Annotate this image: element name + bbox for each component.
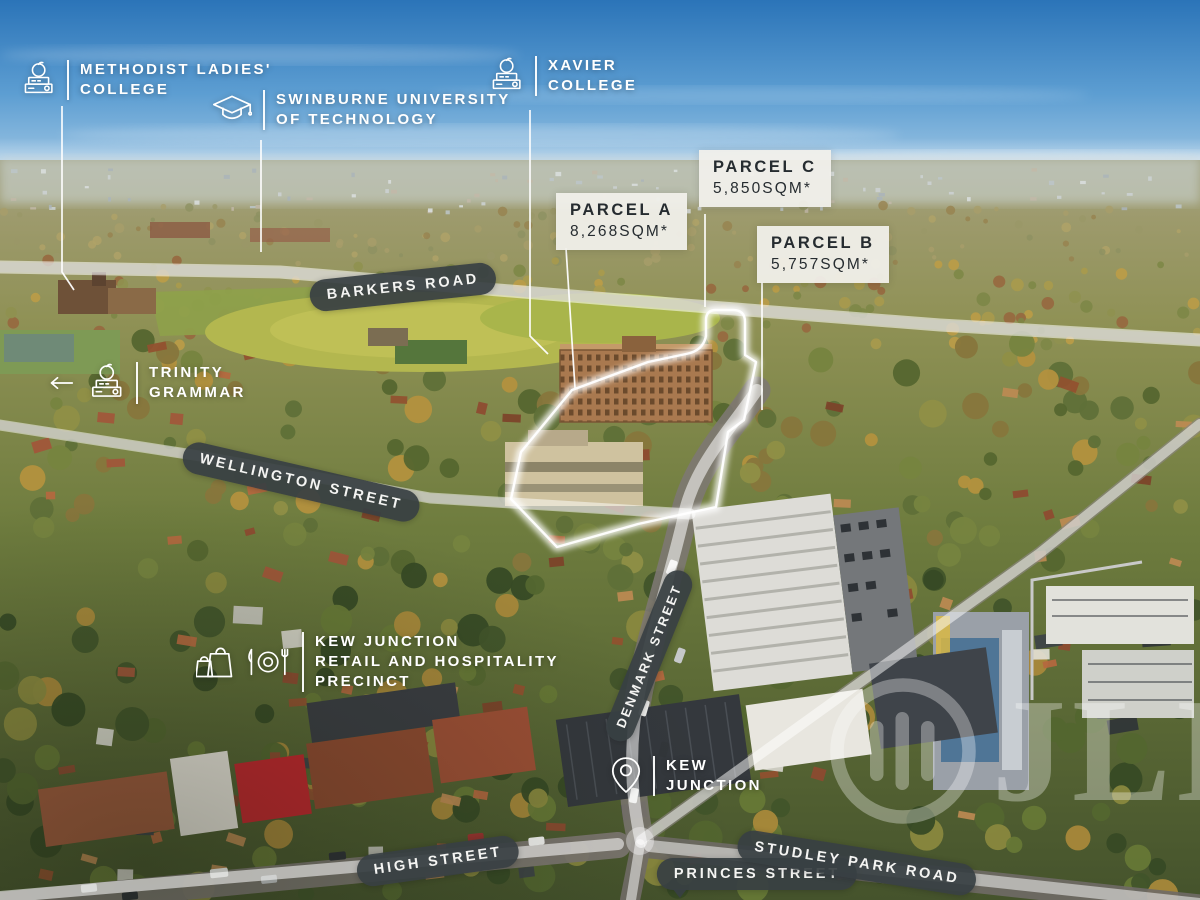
label-divider (653, 756, 655, 796)
label-line: JUNCTION (666, 776, 762, 796)
school-icon (85, 362, 125, 404)
aerial-photo-background (0, 0, 1200, 900)
label-divider (67, 60, 69, 100)
label-trinity-grammar: TRINITY GRAMMAR (48, 362, 246, 404)
label-line: PRECINCT (315, 672, 559, 692)
label-line: COLLEGE (548, 76, 637, 96)
label-kew-junction: KEW JUNCTION (610, 756, 762, 796)
school-icon (486, 56, 524, 96)
parcel-area: 5,757SQM* (771, 256, 875, 274)
parcel-c-callout: PARCEL C 5,850SQM* (699, 150, 831, 207)
label-divider (263, 90, 265, 130)
graduation-cap-icon (212, 94, 252, 126)
label-swinburne-university: SWINBURNE UNIVERSITY OF TECHNOLOGY (212, 90, 511, 130)
label-line: GRAMMAR (149, 383, 246, 403)
label-line: RETAIL AND HOSPITALITY (315, 652, 559, 672)
shopping-bag-icon (196, 641, 236, 683)
label-line: TRINITY (149, 363, 246, 383)
label-divider (302, 632, 304, 692)
label-line: SWINBURNE UNIVERSITY (276, 90, 511, 110)
parcel-name: PARCEL B (771, 234, 875, 253)
label-kew-junction-precinct: KEW JUNCTION RETAIL AND HOSPITALITY PREC… (196, 632, 559, 692)
parcel-name: PARCEL C (713, 158, 817, 177)
parcel-a-callout: PARCEL A 8,268SQM* (556, 193, 687, 250)
label-xavier-college: XAVIER COLLEGE (486, 56, 637, 96)
label-line: XAVIER (548, 56, 637, 76)
map-pin-icon (610, 756, 642, 796)
label-divider (535, 56, 537, 96)
label-line: KEW (666, 756, 762, 776)
label-line: KEW JUNCTION (315, 632, 559, 652)
school-icon (18, 60, 56, 100)
parcel-area: 5,850SQM* (713, 180, 817, 198)
arrow-left-icon (48, 375, 74, 391)
label-line: METHODIST LADIES' (80, 60, 272, 80)
parcel-name: PARCEL A (570, 201, 673, 220)
dining-icon (247, 642, 291, 682)
parcel-b-callout: PARCEL B 5,757SQM* (757, 226, 889, 283)
label-line: OF TECHNOLOGY (276, 110, 511, 130)
parcel-area: 8,268SQM* (570, 223, 673, 241)
label-divider (136, 362, 138, 404)
